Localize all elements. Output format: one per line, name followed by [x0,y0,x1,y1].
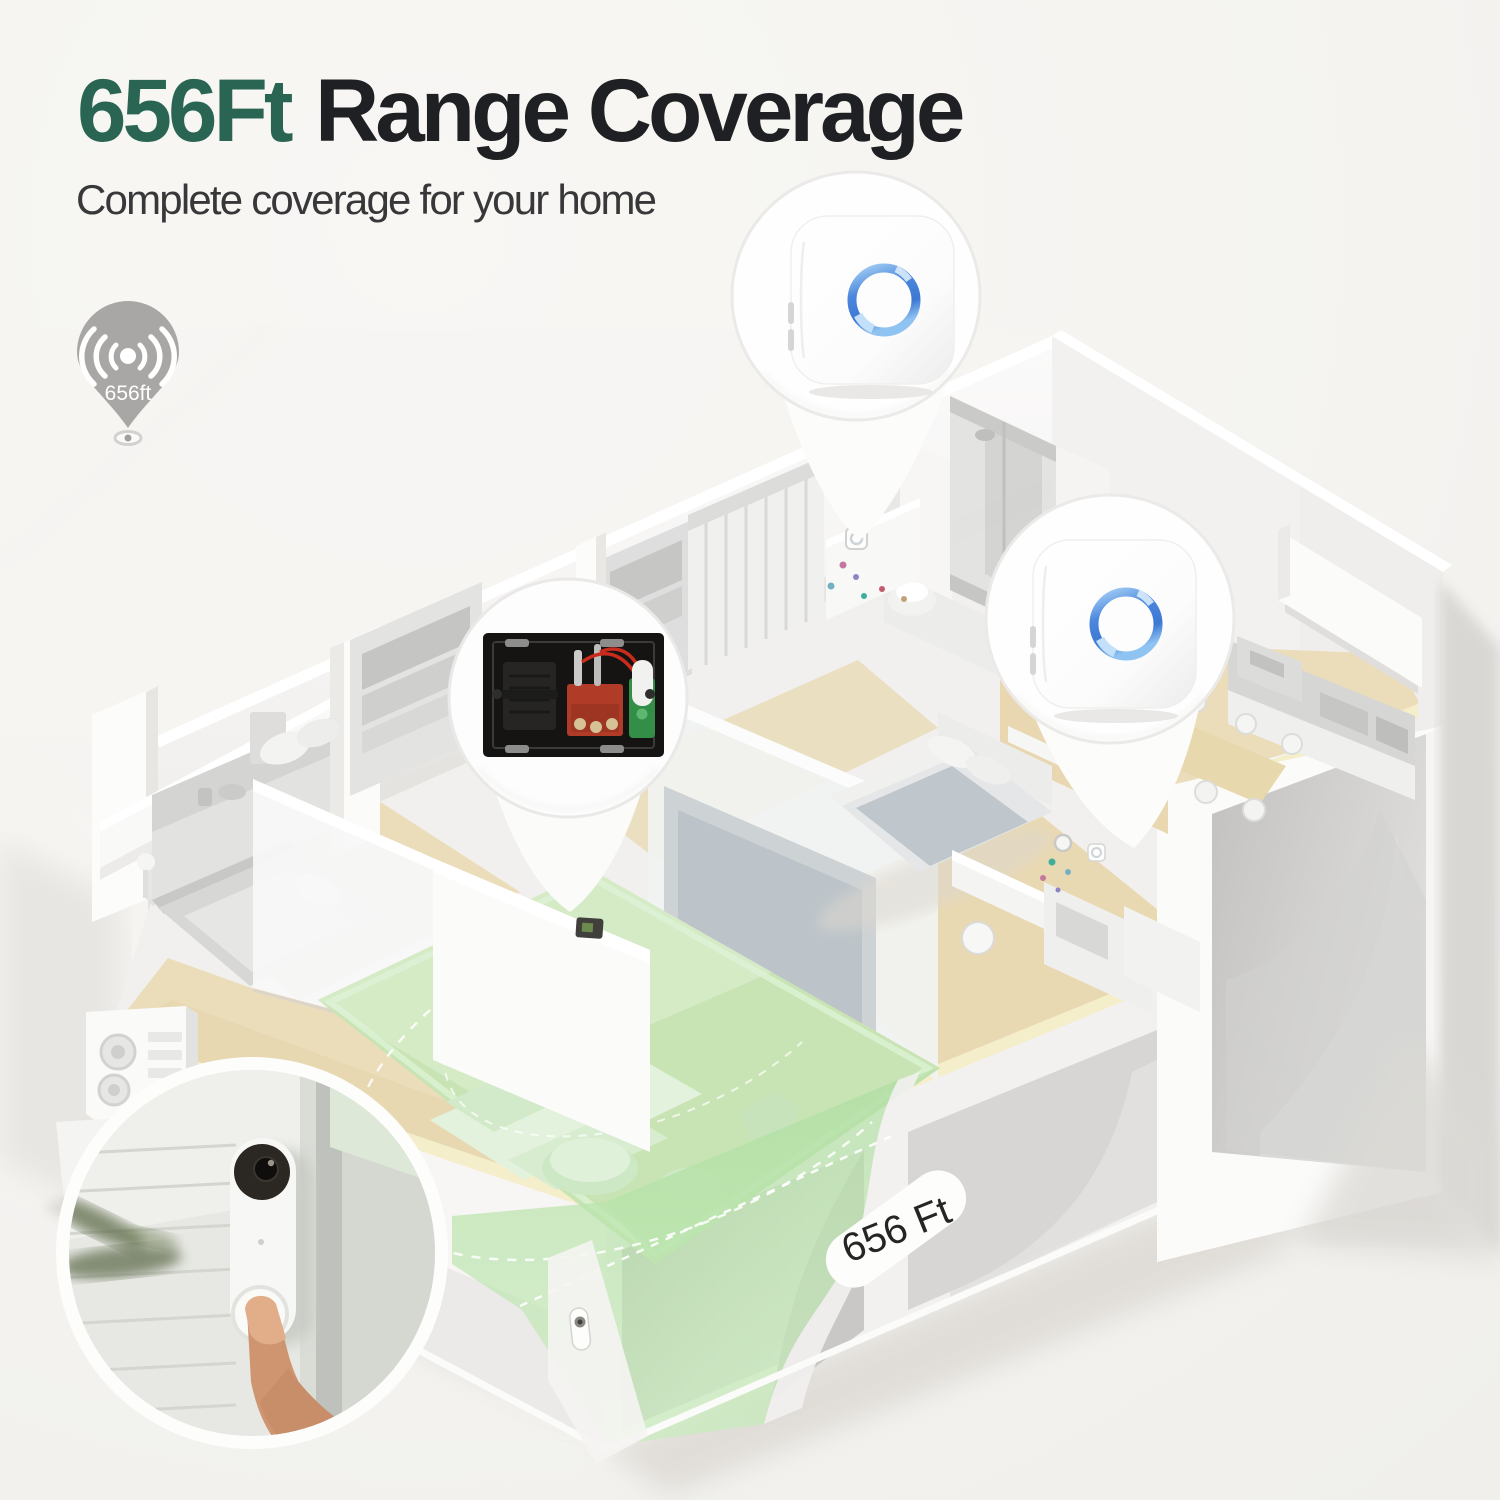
svg-text:656Ft: 656Ft [77,60,293,160]
svg-text:656ft: 656ft [105,382,152,405]
svg-text:Range Coverage: Range Coverage [315,60,963,160]
svg-text:Complete coverage for your hom: Complete coverage for your home [76,176,656,223]
